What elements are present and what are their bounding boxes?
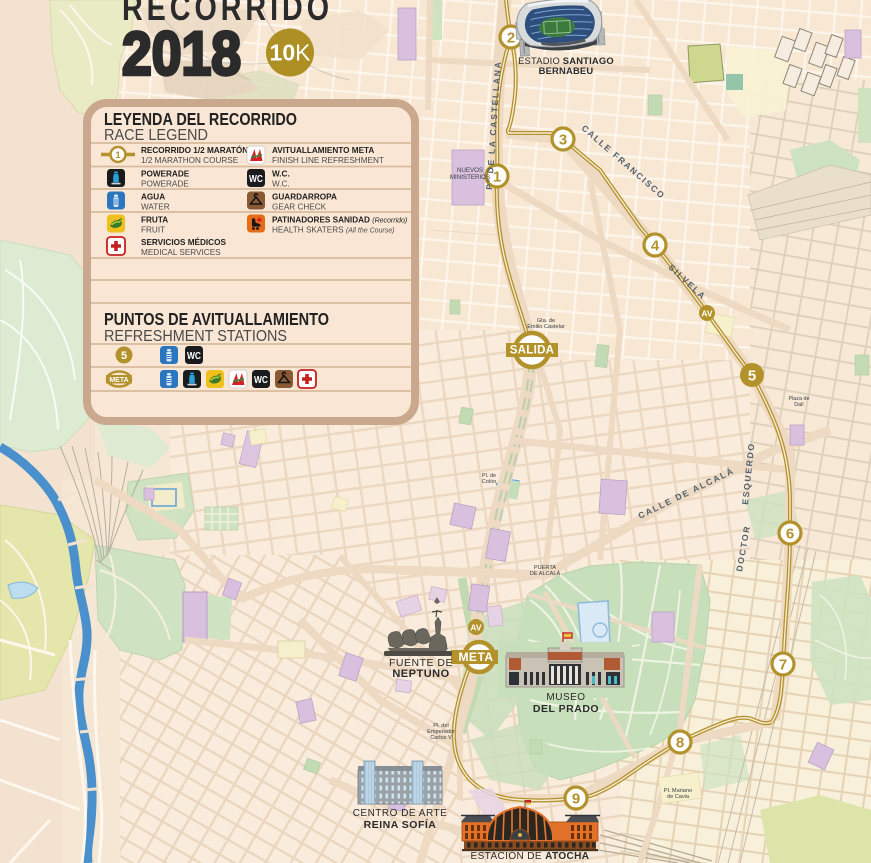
svg-text:8: 8 [676, 735, 684, 752]
svg-text:POWERADE: POWERADE [141, 180, 189, 189]
svg-text:2: 2 [507, 30, 515, 47]
svg-text:LEYENDA DEL RECORRIDO: LEYENDA DEL RECORRIDO [104, 109, 297, 129]
svg-text:META: META [458, 650, 493, 664]
svg-text:ESTACIÓN DE ATOCHA: ESTACIÓN DE ATOCHA [471, 849, 590, 862]
svg-text:4: 4 [651, 238, 660, 255]
svg-text:GEAR CHECK: GEAR CHECK [272, 203, 327, 212]
svg-text:PUNTOS DE AVITUALLAMIENTO: PUNTOS DE AVITUALLAMIENTO [104, 309, 329, 329]
svg-text:FRUIT: FRUIT [141, 226, 165, 235]
svg-text:de Cavia: de Cavia [667, 794, 690, 800]
svg-text:WATER: WATER [141, 203, 170, 212]
svg-text:MUSEO: MUSEO [546, 692, 585, 703]
svg-text:10K: 10K [270, 40, 312, 66]
svg-text:HEALTH SKATERS (All the Course: HEALTH SKATERS (All the Course) [272, 226, 395, 235]
svg-text:REINA SOFÍA: REINA SOFÍA [364, 818, 437, 831]
svg-text:5: 5 [121, 350, 127, 362]
svg-text:RACE LEGEND: RACE LEGEND [104, 127, 208, 144]
svg-text:DEL PRADO: DEL PRADO [533, 703, 599, 715]
svg-text:W.C.: W.C. [272, 170, 290, 179]
svg-text:Colón: Colón [482, 479, 497, 485]
svg-text:PATINADORES SANIDAD (Recorrido: PATINADORES SANIDAD (Recorrido) [272, 216, 407, 225]
svg-text:NEPTUNO: NEPTUNO [392, 668, 449, 680]
svg-text:5: 5 [748, 368, 756, 385]
svg-text:2018: 2018 [122, 20, 241, 88]
svg-text:1/2 MARATHON COURSE: 1/2 MARATHON COURSE [141, 156, 239, 165]
svg-text:RECORRIDO 1/2 MARATÓN: RECORRIDO 1/2 MARATÓN [141, 144, 248, 155]
svg-text:MINISTERIOS: MINISTERIOS [450, 174, 490, 181]
svg-text:BERNABEU: BERNABEU [539, 65, 594, 76]
svg-text:9: 9 [572, 791, 580, 808]
svg-text:7: 7 [779, 657, 787, 674]
svg-text:CENTRO DE ARTE: CENTRO DE ARTE [353, 808, 448, 819]
svg-text:AVITUALLAMIENTO META: AVITUALLAMIENTO META [272, 146, 374, 155]
svg-text:GUARDARROPA: GUARDARROPA [272, 193, 337, 202]
svg-text:3: 3 [559, 132, 567, 149]
svg-text:FRUTA: FRUTA [141, 216, 168, 225]
svg-text:Carlos V: Carlos V [430, 735, 452, 741]
svg-text:SERVICIOS MÉDICOS: SERVICIOS MÉDICOS [141, 237, 226, 247]
svg-text:NUEVOS: NUEVOS [457, 167, 483, 174]
svg-text:FINISH LINE REFRESHMENT: FINISH LINE REFRESHMENT [272, 156, 384, 165]
svg-text:1: 1 [115, 150, 121, 161]
svg-text:AGUA: AGUA [141, 193, 165, 202]
svg-text:AV: AV [701, 309, 713, 319]
svg-text:POWERADE: POWERADE [141, 170, 190, 179]
svg-text:SALIDA: SALIDA [510, 345, 555, 357]
svg-text:Dalí: Dalí [794, 402, 804, 408]
svg-text:REFRESHMENT STATIONS: REFRESHMENT STATIONS [104, 328, 287, 345]
svg-text:W.C.: W.C. [272, 180, 290, 189]
svg-text:AV: AV [470, 623, 482, 633]
svg-text:DE ALCALÁ: DE ALCALÁ [530, 570, 561, 577]
svg-text:MEDICAL SERVICES: MEDICAL SERVICES [141, 248, 221, 257]
svg-text:6: 6 [786, 526, 794, 543]
svg-text:Emilio Castelar: Emilio Castelar [527, 324, 565, 330]
